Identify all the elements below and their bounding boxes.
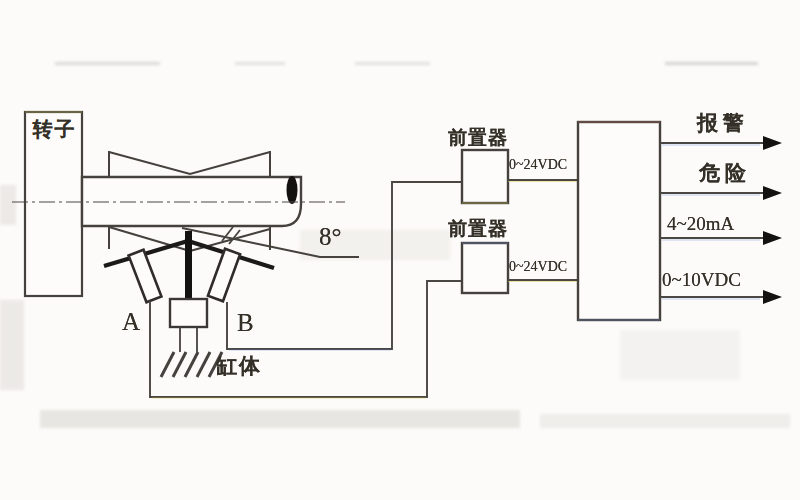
preamp2-box [462, 243, 508, 293]
ground-hatching-icon [161, 352, 222, 377]
arrowhead-icon [763, 186, 782, 200]
sensor-a-probe [129, 250, 162, 302]
schematic-canvas [0, 0, 800, 500]
rotor-label: 转子 [27, 119, 82, 139]
preamp1-label: 前置器 [448, 128, 508, 147]
preamp1-box [462, 150, 508, 203]
scanned-diagram-page: 转子 A B 缸体 8° 前置器 前置器 0~24VDC 0~24VDC 报警 … [0, 0, 800, 500]
output-label-alarm: 报警 [697, 113, 749, 134]
output-label-0-10vdc: 0~10VDC [662, 270, 741, 289]
cylinder-label: 缸体 [216, 356, 262, 377]
scan-artifacts [0, 62, 790, 428]
output-arrowheads [763, 136, 782, 304]
sensor-b-probe [208, 249, 240, 301]
angle-label: 8° [319, 224, 342, 249]
output-label-danger: 危险 [699, 163, 751, 184]
sensor-b-label: B [237, 310, 254, 335]
probe-holder-leads [180, 327, 197, 352]
arrowhead-icon [763, 231, 782, 245]
sensor-a-label: A [122, 309, 140, 334]
preamp2-label: 前置器 [448, 219, 508, 238]
probe-holder-box [170, 299, 207, 327]
shaft-keyphasor-mark [287, 176, 298, 204]
arrowhead-icon [763, 290, 782, 304]
probe-stem [185, 231, 192, 300]
arrowhead-icon [763, 136, 782, 150]
preamp1-supply-label: 0~24VDC [509, 158, 567, 172]
monitor-box [578, 122, 660, 320]
output-label-4-20ma: 4~20mA [667, 214, 734, 233]
preamp2-supply-label: 0~24VDC [509, 260, 567, 274]
